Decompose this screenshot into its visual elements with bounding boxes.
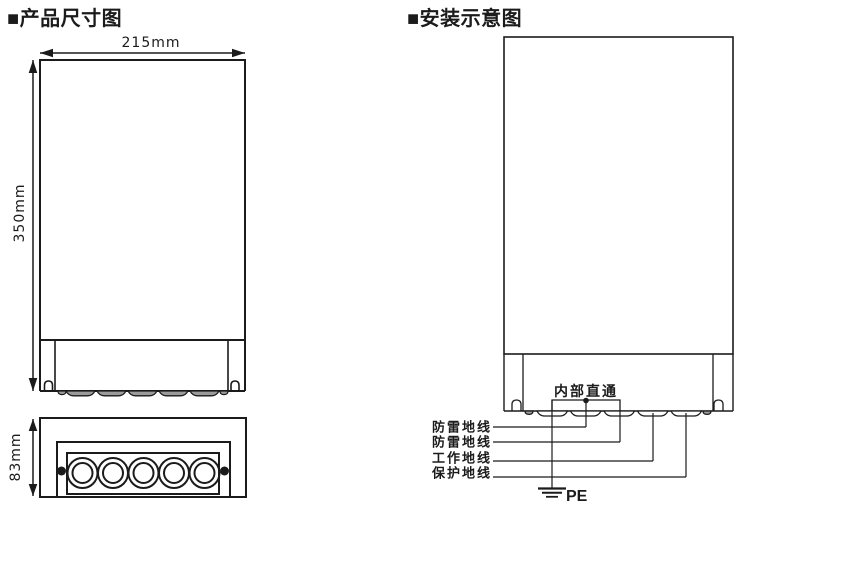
enclosure-body-outline: [504, 37, 733, 354]
mounting-hook-right-icon: [714, 400, 723, 411]
gland-foot: [220, 391, 228, 395]
cable-gland-scallop: [97, 391, 126, 396]
cable-gland-scallop: [128, 391, 157, 396]
depth-dimension-label: 83mm: [8, 432, 24, 481]
depth-dimension: 83mm: [8, 419, 37, 496]
left-section-title: ■产品尺寸图: [7, 6, 122, 30]
arrowhead-up-icon: [29, 419, 38, 431]
screw-dot-right: [220, 467, 229, 476]
cable-gland-scallop: [159, 391, 188, 396]
front-view: [40, 60, 245, 396]
cable-gland-scallop: [604, 411, 635, 416]
drawing-canvas: ■产品尺寸图 215mm 350mm: [0, 0, 864, 562]
arrowhead-down-icon: [29, 378, 38, 391]
installation-diagram: ■安装示意图 内部直通: [407, 6, 733, 505]
right-section-title: ■安装示意图: [407, 6, 522, 30]
mounting-hook-right-icon: [231, 381, 239, 391]
enclosure-front-view: [504, 37, 733, 416]
gland-foot: [703, 411, 711, 414]
gland-foot: [58, 391, 66, 395]
earth-ground-symbol: PE: [538, 488, 588, 505]
height-dimension: 350mm: [12, 60, 37, 391]
cable-gland-scallop: [190, 391, 219, 396]
wire-label-protective-ground: 保护地线: [431, 466, 492, 481]
height-dimension-label: 350mm: [12, 184, 28, 243]
bottom-view: [40, 418, 246, 497]
wire-label-working-ground: 工作地线: [432, 451, 492, 466]
wire-label-lightning-ground-2: 防雷地线: [432, 435, 492, 450]
product-dimension-diagram: ■产品尺寸图 215mm 350mm: [7, 6, 246, 497]
arrowhead-up-icon: [29, 60, 38, 73]
mounting-hook-left-icon: [512, 400, 521, 411]
mounting-hook-left-icon: [45, 381, 53, 391]
width-dimension-label: 215mm: [122, 35, 181, 51]
width-dimension: 215mm: [40, 35, 245, 57]
technical-drawing-page: ■产品尺寸图 215mm 350mm: [0, 0, 864, 562]
arrowhead-left-icon: [40, 49, 53, 58]
gland-foot: [525, 411, 533, 414]
screw-dot-left: [57, 467, 66, 476]
enclosure-body-outline: [40, 60, 245, 340]
pe-label: PE: [566, 488, 588, 505]
internal-passthrough-label: 内部直通: [554, 383, 618, 399]
arrowhead-right-icon: [232, 49, 245, 58]
wire-label-lightning-ground-1: 防雷地线: [432, 420, 492, 435]
wire-labels: 防雷地线 防雷地线 工作地线 保护地线: [431, 420, 492, 481]
arrowhead-down-icon: [29, 484, 38, 496]
cable-gland-scallop: [66, 391, 95, 396]
